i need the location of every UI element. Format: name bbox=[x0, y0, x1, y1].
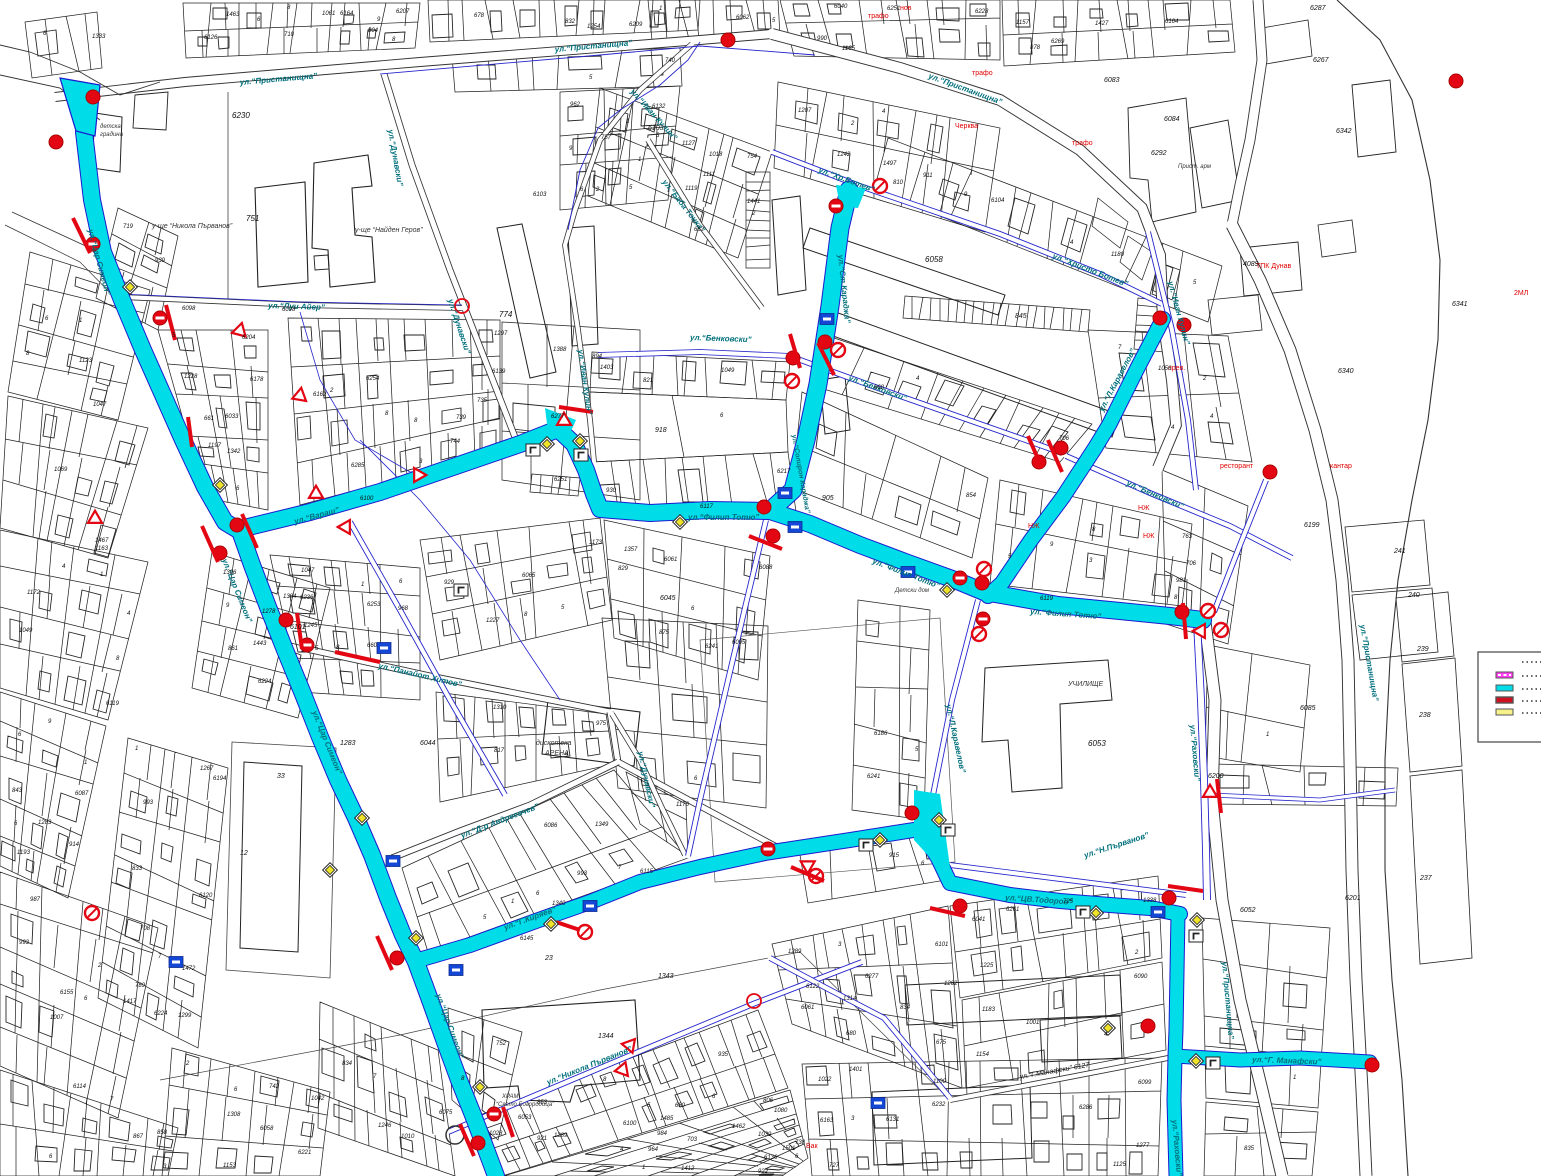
svg-text:6053: 6053 bbox=[518, 1115, 532, 1121]
svg-text:1443: 1443 bbox=[253, 641, 267, 647]
svg-text:929: 929 bbox=[444, 580, 455, 586]
svg-text:710: 710 bbox=[284, 32, 295, 38]
svg-text:1427: 1427 bbox=[1095, 21, 1109, 27]
svg-text:6267: 6267 bbox=[1313, 57, 1330, 64]
svg-text:6065: 6065 bbox=[522, 573, 536, 579]
svg-text:1401: 1401 bbox=[849, 1067, 862, 1073]
svg-text:6342: 6342 bbox=[1336, 128, 1352, 135]
svg-text:6132: 6132 bbox=[652, 104, 666, 110]
svg-text:6117: 6117 bbox=[700, 504, 714, 510]
svg-text:трафо: трафо bbox=[868, 13, 889, 20]
svg-text:990: 990 bbox=[817, 36, 828, 42]
svg-text:1225: 1225 bbox=[980, 963, 994, 969]
svg-text:6232: 6232 bbox=[932, 1102, 946, 1108]
svg-text:845: 845 bbox=[1015, 313, 1027, 320]
svg-text:1310: 1310 bbox=[493, 705, 507, 711]
svg-text:867: 867 bbox=[133, 1134, 144, 1140]
svg-text:2: 2 bbox=[185, 1061, 190, 1067]
svg-text:6277: 6277 bbox=[865, 974, 879, 980]
svg-text:843: 843 bbox=[12, 788, 23, 794]
svg-text:НЖ: НЖ bbox=[1143, 533, 1155, 540]
svg-text:1472: 1472 bbox=[182, 966, 196, 972]
svg-text:964: 964 bbox=[648, 1147, 659, 1153]
svg-text:706: 706 bbox=[1059, 436, 1070, 442]
svg-text:1340: 1340 bbox=[552, 901, 566, 907]
svg-text:НЖ: НЖ bbox=[1138, 505, 1150, 512]
svg-text:6061: 6061 bbox=[801, 1005, 814, 1011]
svg-text:6126: 6126 bbox=[204, 35, 218, 41]
svg-text:1119: 1119 bbox=[685, 186, 698, 192]
svg-text:1289: 1289 bbox=[788, 949, 802, 955]
svg-text:6122: 6122 bbox=[806, 984, 820, 990]
svg-text:993: 993 bbox=[19, 940, 30, 946]
svg-text:1069: 1069 bbox=[54, 467, 68, 473]
svg-text:1388: 1388 bbox=[553, 347, 567, 353]
svg-text:6084: 6084 bbox=[1164, 116, 1180, 123]
svg-text:1207: 1207 bbox=[798, 108, 812, 114]
svg-text:1123: 1123 bbox=[79, 358, 93, 364]
svg-text:738: 738 bbox=[795, 1140, 806, 1146]
svg-text:6131: 6131 bbox=[886, 1117, 899, 1123]
svg-text:1283: 1283 bbox=[340, 740, 356, 747]
svg-text:6186: 6186 bbox=[874, 731, 888, 737]
svg-text:821: 821 bbox=[643, 378, 653, 384]
svg-text:1197: 1197 bbox=[208, 443, 222, 449]
svg-text:752: 752 bbox=[496, 1041, 507, 1047]
svg-text:1153: 1153 bbox=[223, 1163, 237, 1169]
svg-text:6241: 6241 bbox=[705, 644, 718, 650]
svg-text:1125: 1125 bbox=[1113, 1162, 1127, 1168]
svg-text:6075: 6075 bbox=[439, 1110, 453, 1116]
svg-text:кантар: кантар bbox=[1330, 463, 1352, 470]
svg-text:833: 833 bbox=[132, 866, 143, 872]
svg-text:1028: 1028 bbox=[489, 1131, 503, 1137]
svg-text:1183: 1183 bbox=[982, 1007, 996, 1013]
svg-text:1441: 1441 bbox=[747, 199, 760, 205]
svg-text:911: 911 bbox=[923, 173, 933, 179]
svg-text:774: 774 bbox=[499, 310, 513, 319]
svg-text:ТПК Дунав: ТПК Дунав bbox=[1256, 263, 1291, 270]
svg-text:1111: 1111 bbox=[703, 172, 715, 178]
svg-text:6085: 6085 bbox=[1300, 705, 1316, 712]
svg-text:градина: градина bbox=[100, 132, 124, 138]
svg-text:6062: 6062 bbox=[736, 15, 750, 21]
svg-text:1193: 1193 bbox=[17, 850, 31, 856]
svg-text:1: 1 bbox=[659, 6, 662, 12]
svg-text:1176: 1176 bbox=[676, 802, 690, 808]
svg-text:1173: 1173 bbox=[589, 540, 603, 546]
svg-text:810: 810 bbox=[893, 180, 904, 186]
svg-text:1417: 1417 bbox=[123, 999, 137, 1005]
svg-text:725: 725 bbox=[1063, 899, 1074, 905]
svg-text:Детски дом: Детски дом bbox=[894, 588, 929, 594]
svg-text:6040: 6040 bbox=[834, 4, 848, 10]
svg-text:6101: 6101 bbox=[935, 942, 948, 948]
svg-text:6103: 6103 bbox=[533, 192, 547, 198]
svg-text:ХРАМ: ХРАМ bbox=[501, 1094, 519, 1100]
svg-text:6224: 6224 bbox=[154, 1011, 168, 1017]
svg-text:6098: 6098 bbox=[182, 306, 196, 312]
svg-text:984: 984 bbox=[657, 1131, 668, 1137]
svg-text:6119: 6119 bbox=[1040, 596, 1054, 602]
svg-text:1467: 1467 bbox=[95, 538, 109, 544]
svg-text:2: 2 bbox=[595, 187, 600, 193]
svg-text:2: 2 bbox=[751, 211, 756, 217]
svg-text:6087: 6087 bbox=[75, 791, 89, 797]
svg-text:6224: 6224 bbox=[258, 679, 272, 685]
svg-text:1049: 1049 bbox=[19, 628, 33, 634]
svg-text:6209: 6209 bbox=[629, 22, 643, 28]
svg-text:6164: 6164 bbox=[1165, 19, 1179, 25]
svg-text:6088: 6088 bbox=[759, 565, 773, 571]
svg-text:993: 993 bbox=[143, 800, 154, 806]
svg-text:832: 832 bbox=[565, 19, 576, 25]
svg-text:6061: 6061 bbox=[664, 557, 677, 563]
svg-text:6163: 6163 bbox=[820, 1118, 834, 1124]
svg-text:6341: 6341 bbox=[1452, 301, 1468, 308]
svg-text:1039: 1039 bbox=[758, 1132, 772, 1138]
svg-text:нов: нов bbox=[900, 5, 912, 12]
svg-text:1061: 1061 bbox=[322, 11, 335, 17]
svg-text:1262: 1262 bbox=[944, 981, 958, 987]
svg-text:6103: 6103 bbox=[648, 125, 664, 132]
svg-text:1277: 1277 bbox=[1136, 1143, 1150, 1149]
svg-text:6285: 6285 bbox=[351, 463, 365, 469]
svg-text:240: 240 bbox=[1407, 592, 1420, 599]
svg-text:987: 987 bbox=[30, 897, 41, 903]
svg-text:1289: 1289 bbox=[554, 1133, 568, 1139]
svg-text:6090: 6090 bbox=[1134, 974, 1148, 980]
svg-text:6251: 6251 bbox=[887, 6, 900, 12]
svg-text:1: 1 bbox=[626, 119, 629, 125]
svg-text:930: 930 bbox=[606, 488, 617, 494]
svg-text:1: 1 bbox=[79, 318, 82, 324]
svg-text:6139: 6139 bbox=[492, 369, 506, 375]
svg-text:6241: 6241 bbox=[867, 774, 880, 780]
svg-text:939: 939 bbox=[155, 258, 166, 264]
svg-text:708: 708 bbox=[140, 926, 151, 932]
svg-text:6287: 6287 bbox=[1310, 5, 1327, 12]
svg-text:6045: 6045 bbox=[660, 595, 676, 602]
svg-text:6221: 6221 bbox=[298, 1150, 311, 1156]
svg-text:1: 1 bbox=[1293, 1075, 1296, 1081]
svg-text:703: 703 bbox=[687, 1137, 698, 1143]
svg-text:1180: 1180 bbox=[1111, 252, 1125, 258]
svg-text:1: 1 bbox=[100, 572, 103, 578]
svg-text:1100: 1100 bbox=[933, 1079, 947, 1085]
svg-text:834: 834 bbox=[342, 1061, 353, 1067]
svg-text:1306: 1306 bbox=[223, 570, 237, 576]
svg-text:1357: 1357 bbox=[624, 547, 638, 553]
svg-text:6162: 6162 bbox=[313, 392, 327, 398]
svg-text:918: 918 bbox=[655, 427, 667, 434]
svg-text:1462: 1462 bbox=[732, 1124, 746, 1130]
svg-text:6194: 6194 bbox=[213, 776, 227, 782]
svg-text:727: 727 bbox=[829, 1163, 840, 1169]
svg-text:трафо: трафо bbox=[1072, 140, 1093, 147]
svg-text:1228: 1228 bbox=[184, 374, 198, 380]
svg-text:6207: 6207 bbox=[396, 9, 410, 15]
svg-text:1403: 1403 bbox=[600, 365, 614, 371]
svg-text:ул.“Филип Тотю”: ул.“Филип Тотю” bbox=[687, 513, 759, 522]
svg-text:1007: 1007 bbox=[50, 1015, 64, 1021]
svg-text:1022: 1022 bbox=[818, 1077, 832, 1083]
svg-text:763: 763 bbox=[1182, 534, 1193, 540]
svg-text:868: 868 bbox=[874, 385, 885, 391]
svg-text:835: 835 bbox=[1244, 1146, 1255, 1152]
svg-text:6236: 6236 bbox=[300, 595, 314, 601]
svg-text:НЖ: НЖ bbox=[1028, 523, 1040, 530]
svg-text:у-ще “Найден Геров”: у-ще “Найден Геров” bbox=[354, 226, 423, 234]
svg-text:ресторант: ресторант bbox=[1220, 463, 1254, 470]
svg-text:1018: 1018 bbox=[709, 152, 723, 158]
svg-text:Прист. арм: Прист. арм bbox=[1178, 164, 1211, 170]
svg-text:1349: 1349 bbox=[595, 822, 609, 828]
svg-text:1333: 1333 bbox=[92, 34, 106, 40]
svg-text:1056: 1056 bbox=[1158, 366, 1172, 372]
svg-text:1254: 1254 bbox=[587, 24, 601, 30]
svg-text:1042: 1042 bbox=[311, 1096, 325, 1102]
svg-text:6145: 6145 bbox=[520, 936, 534, 942]
svg-text:6269: 6269 bbox=[1051, 39, 1065, 45]
svg-text:6100: 6100 bbox=[623, 1121, 637, 1127]
svg-text:680: 680 bbox=[846, 1031, 857, 1037]
svg-text:739: 739 bbox=[456, 415, 467, 421]
svg-text:6204: 6204 bbox=[242, 335, 256, 341]
svg-text:678: 678 bbox=[474, 13, 485, 19]
svg-text:1283: 1283 bbox=[38, 820, 52, 826]
svg-text:1485: 1485 bbox=[660, 1116, 674, 1122]
svg-text:2: 2 bbox=[329, 388, 334, 394]
svg-text:239: 239 bbox=[1416, 646, 1429, 653]
svg-text:1163: 1163 bbox=[95, 546, 109, 552]
svg-text:2МЛ: 2МЛ bbox=[1514, 290, 1529, 297]
svg-text:6115: 6115 bbox=[640, 869, 654, 875]
svg-text:875: 875 bbox=[659, 630, 670, 636]
svg-text:6178: 6178 bbox=[250, 377, 264, 383]
svg-text:6083: 6083 bbox=[1104, 77, 1120, 84]
svg-text:6228: 6228 bbox=[975, 9, 989, 15]
svg-text:у-ще “Никола Първанов”: у-ще “Никола Първанов” bbox=[151, 223, 233, 230]
svg-text:6119: 6119 bbox=[106, 701, 120, 707]
svg-text:744: 744 bbox=[450, 439, 461, 445]
svg-text:6053: 6053 bbox=[1088, 739, 1106, 748]
svg-text:трафо: трафо bbox=[972, 70, 993, 77]
svg-text:1: 1 bbox=[84, 760, 87, 766]
svg-text:751: 751 bbox=[246, 214, 259, 223]
svg-text:905: 905 bbox=[822, 495, 834, 502]
svg-text:1246: 1246 bbox=[378, 1123, 392, 1129]
svg-text:1497: 1497 bbox=[883, 161, 897, 167]
svg-text:6261: 6261 bbox=[1006, 907, 1019, 913]
svg-text:6099: 6099 bbox=[1138, 1080, 1152, 1086]
svg-text:1267: 1267 bbox=[200, 766, 214, 772]
svg-text:1: 1 bbox=[135, 746, 138, 752]
svg-text:1010: 1010 bbox=[401, 1134, 415, 1140]
svg-text:853: 853 bbox=[537, 1100, 548, 1106]
svg-text:829: 829 bbox=[618, 566, 629, 572]
svg-text:1: 1 bbox=[638, 157, 641, 163]
svg-text:968: 968 bbox=[398, 606, 409, 612]
svg-text:1157: 1157 bbox=[1016, 20, 1030, 26]
svg-text:789: 789 bbox=[135, 983, 146, 989]
svg-text:1297: 1297 bbox=[494, 331, 508, 337]
svg-text:6100: 6100 bbox=[360, 496, 374, 502]
svg-text:6044: 6044 bbox=[420, 740, 436, 747]
svg-text:1384: 1384 bbox=[283, 594, 297, 600]
svg-text:1501: 1501 bbox=[782, 1146, 795, 1152]
svg-text:2: 2 bbox=[850, 121, 855, 127]
svg-text:962: 962 bbox=[570, 102, 581, 108]
svg-text:975: 975 bbox=[596, 721, 607, 727]
svg-text:1049: 1049 bbox=[721, 368, 735, 374]
svg-text:6201: 6201 bbox=[1345, 895, 1361, 902]
svg-text:817: 817 bbox=[494, 748, 505, 754]
svg-text:6114: 6114 bbox=[73, 1084, 87, 1090]
svg-text:6230: 6230 bbox=[232, 111, 250, 120]
svg-text:1: 1 bbox=[361, 582, 364, 588]
svg-text:1299: 1299 bbox=[178, 1013, 192, 1019]
svg-text:660: 660 bbox=[367, 643, 378, 649]
svg-text:1342: 1342 bbox=[227, 449, 241, 455]
svg-text:6217: 6217 bbox=[777, 469, 791, 475]
svg-text:Черква: Черква bbox=[955, 123, 978, 130]
svg-text:719: 719 bbox=[123, 224, 134, 230]
svg-text:12: 12 bbox=[240, 850, 248, 857]
svg-text:6136: 6136 bbox=[764, 1155, 778, 1161]
svg-text:2: 2 bbox=[97, 963, 102, 969]
svg-text:УЧИЛИЩЕ: УЧИЛИЩЕ bbox=[1067, 681, 1103, 688]
svg-text:922: 922 bbox=[758, 1169, 769, 1175]
svg-text:6095: 6095 bbox=[732, 640, 746, 646]
svg-text:1242: 1242 bbox=[837, 152, 851, 158]
svg-text:6155: 6155 bbox=[60, 990, 74, 996]
svg-text:6058: 6058 bbox=[260, 1126, 274, 1132]
svg-text:241: 241 bbox=[1393, 548, 1406, 555]
svg-text:1047: 1047 bbox=[93, 402, 107, 408]
svg-text:Вак: Вак bbox=[806, 1143, 819, 1150]
svg-text:754: 754 bbox=[747, 154, 758, 160]
svg-text:858: 858 bbox=[157, 1130, 168, 1136]
svg-text:757: 757 bbox=[601, 135, 612, 141]
svg-text:6286: 6286 bbox=[1079, 1105, 1093, 1111]
svg-text:680: 680 bbox=[675, 1103, 686, 1109]
svg-text:878: 878 bbox=[1030, 45, 1041, 51]
svg-text:1308: 1308 bbox=[227, 1112, 241, 1118]
svg-text:6292: 6292 bbox=[1151, 150, 1167, 157]
svg-text:1278: 1278 bbox=[262, 609, 276, 615]
svg-text:735: 735 bbox=[477, 398, 488, 404]
svg-text:1245: 1245 bbox=[304, 623, 318, 629]
svg-text:6340: 6340 bbox=[1338, 368, 1354, 375]
svg-text:6086: 6086 bbox=[544, 823, 558, 829]
svg-text:6199: 6199 bbox=[1304, 522, 1320, 529]
svg-text:6254: 6254 bbox=[366, 376, 380, 382]
svg-text:1344: 1344 bbox=[598, 1033, 614, 1040]
svg-text:6277: 6277 bbox=[551, 414, 565, 420]
svg-text:742: 742 bbox=[269, 1084, 280, 1090]
svg-text:1343: 1343 bbox=[658, 973, 674, 980]
svg-text:дискотека: дискотека bbox=[536, 739, 571, 747]
svg-text:1001: 1001 bbox=[1026, 1020, 1039, 1026]
svg-text:1080: 1080 bbox=[774, 1108, 788, 1114]
svg-text:1047: 1047 bbox=[301, 568, 315, 574]
svg-text:238: 238 bbox=[1418, 712, 1431, 719]
svg-text:детска: детска bbox=[100, 124, 121, 130]
svg-text:834: 834 bbox=[900, 1005, 911, 1011]
svg-text:2: 2 bbox=[1202, 376, 1207, 382]
svg-text:1314: 1314 bbox=[843, 996, 857, 1002]
svg-text:1463: 1463 bbox=[226, 12, 240, 18]
svg-text:854: 854 bbox=[966, 493, 977, 499]
svg-text:740: 740 bbox=[665, 58, 676, 64]
svg-text:915: 915 bbox=[889, 853, 900, 859]
svg-text:6058: 6058 bbox=[925, 255, 943, 264]
svg-text:894: 894 bbox=[592, 354, 603, 360]
svg-text:675: 675 bbox=[936, 1040, 947, 1046]
svg-text:1: 1 bbox=[511, 899, 514, 905]
svg-text:804: 804 bbox=[368, 28, 379, 34]
svg-text:861: 861 bbox=[228, 646, 238, 652]
svg-text:6041: 6041 bbox=[972, 917, 985, 923]
svg-text:6120: 6120 bbox=[199, 893, 213, 899]
svg-text:981: 981 bbox=[1176, 578, 1186, 584]
svg-text:914: 914 bbox=[69, 842, 80, 848]
svg-text:993: 993 bbox=[577, 871, 588, 877]
svg-text:921: 921 bbox=[537, 1136, 547, 1142]
svg-text:6200: 6200 bbox=[1208, 773, 1224, 780]
svg-text:935: 935 bbox=[718, 1052, 729, 1058]
svg-text:662: 662 bbox=[694, 227, 705, 233]
svg-text:1: 1 bbox=[642, 1165, 645, 1171]
svg-text:33: 33 bbox=[277, 773, 285, 780]
svg-text:661: 661 bbox=[204, 416, 214, 422]
svg-text:6098: 6098 bbox=[282, 307, 296, 313]
svg-text:6033: 6033 bbox=[225, 414, 239, 420]
svg-text:1412: 1412 bbox=[681, 1166, 695, 1172]
svg-text:1172: 1172 bbox=[27, 590, 41, 596]
svg-text:1: 1 bbox=[1266, 732, 1269, 738]
svg-text:6052: 6052 bbox=[1240, 907, 1256, 914]
svg-text:6251: 6251 bbox=[554, 477, 567, 483]
svg-text:237: 237 bbox=[1419, 875, 1433, 882]
svg-text:6104: 6104 bbox=[991, 198, 1005, 204]
svg-text:1338: 1338 bbox=[1143, 898, 1157, 904]
svg-text:23: 23 bbox=[544, 955, 553, 962]
svg-text:2: 2 bbox=[1134, 950, 1139, 956]
svg-text:806: 806 bbox=[763, 1098, 774, 1104]
svg-text:1227: 1227 bbox=[486, 618, 500, 624]
svg-text:1127: 1127 bbox=[682, 141, 696, 147]
svg-text:4089: 4089 bbox=[1243, 261, 1259, 268]
svg-text:6164: 6164 bbox=[340, 11, 354, 17]
svg-text:6253: 6253 bbox=[367, 602, 381, 608]
svg-text:1165: 1165 bbox=[842, 46, 856, 52]
svg-text:1154: 1154 bbox=[976, 1052, 990, 1058]
svg-text:706: 706 bbox=[1186, 561, 1197, 567]
